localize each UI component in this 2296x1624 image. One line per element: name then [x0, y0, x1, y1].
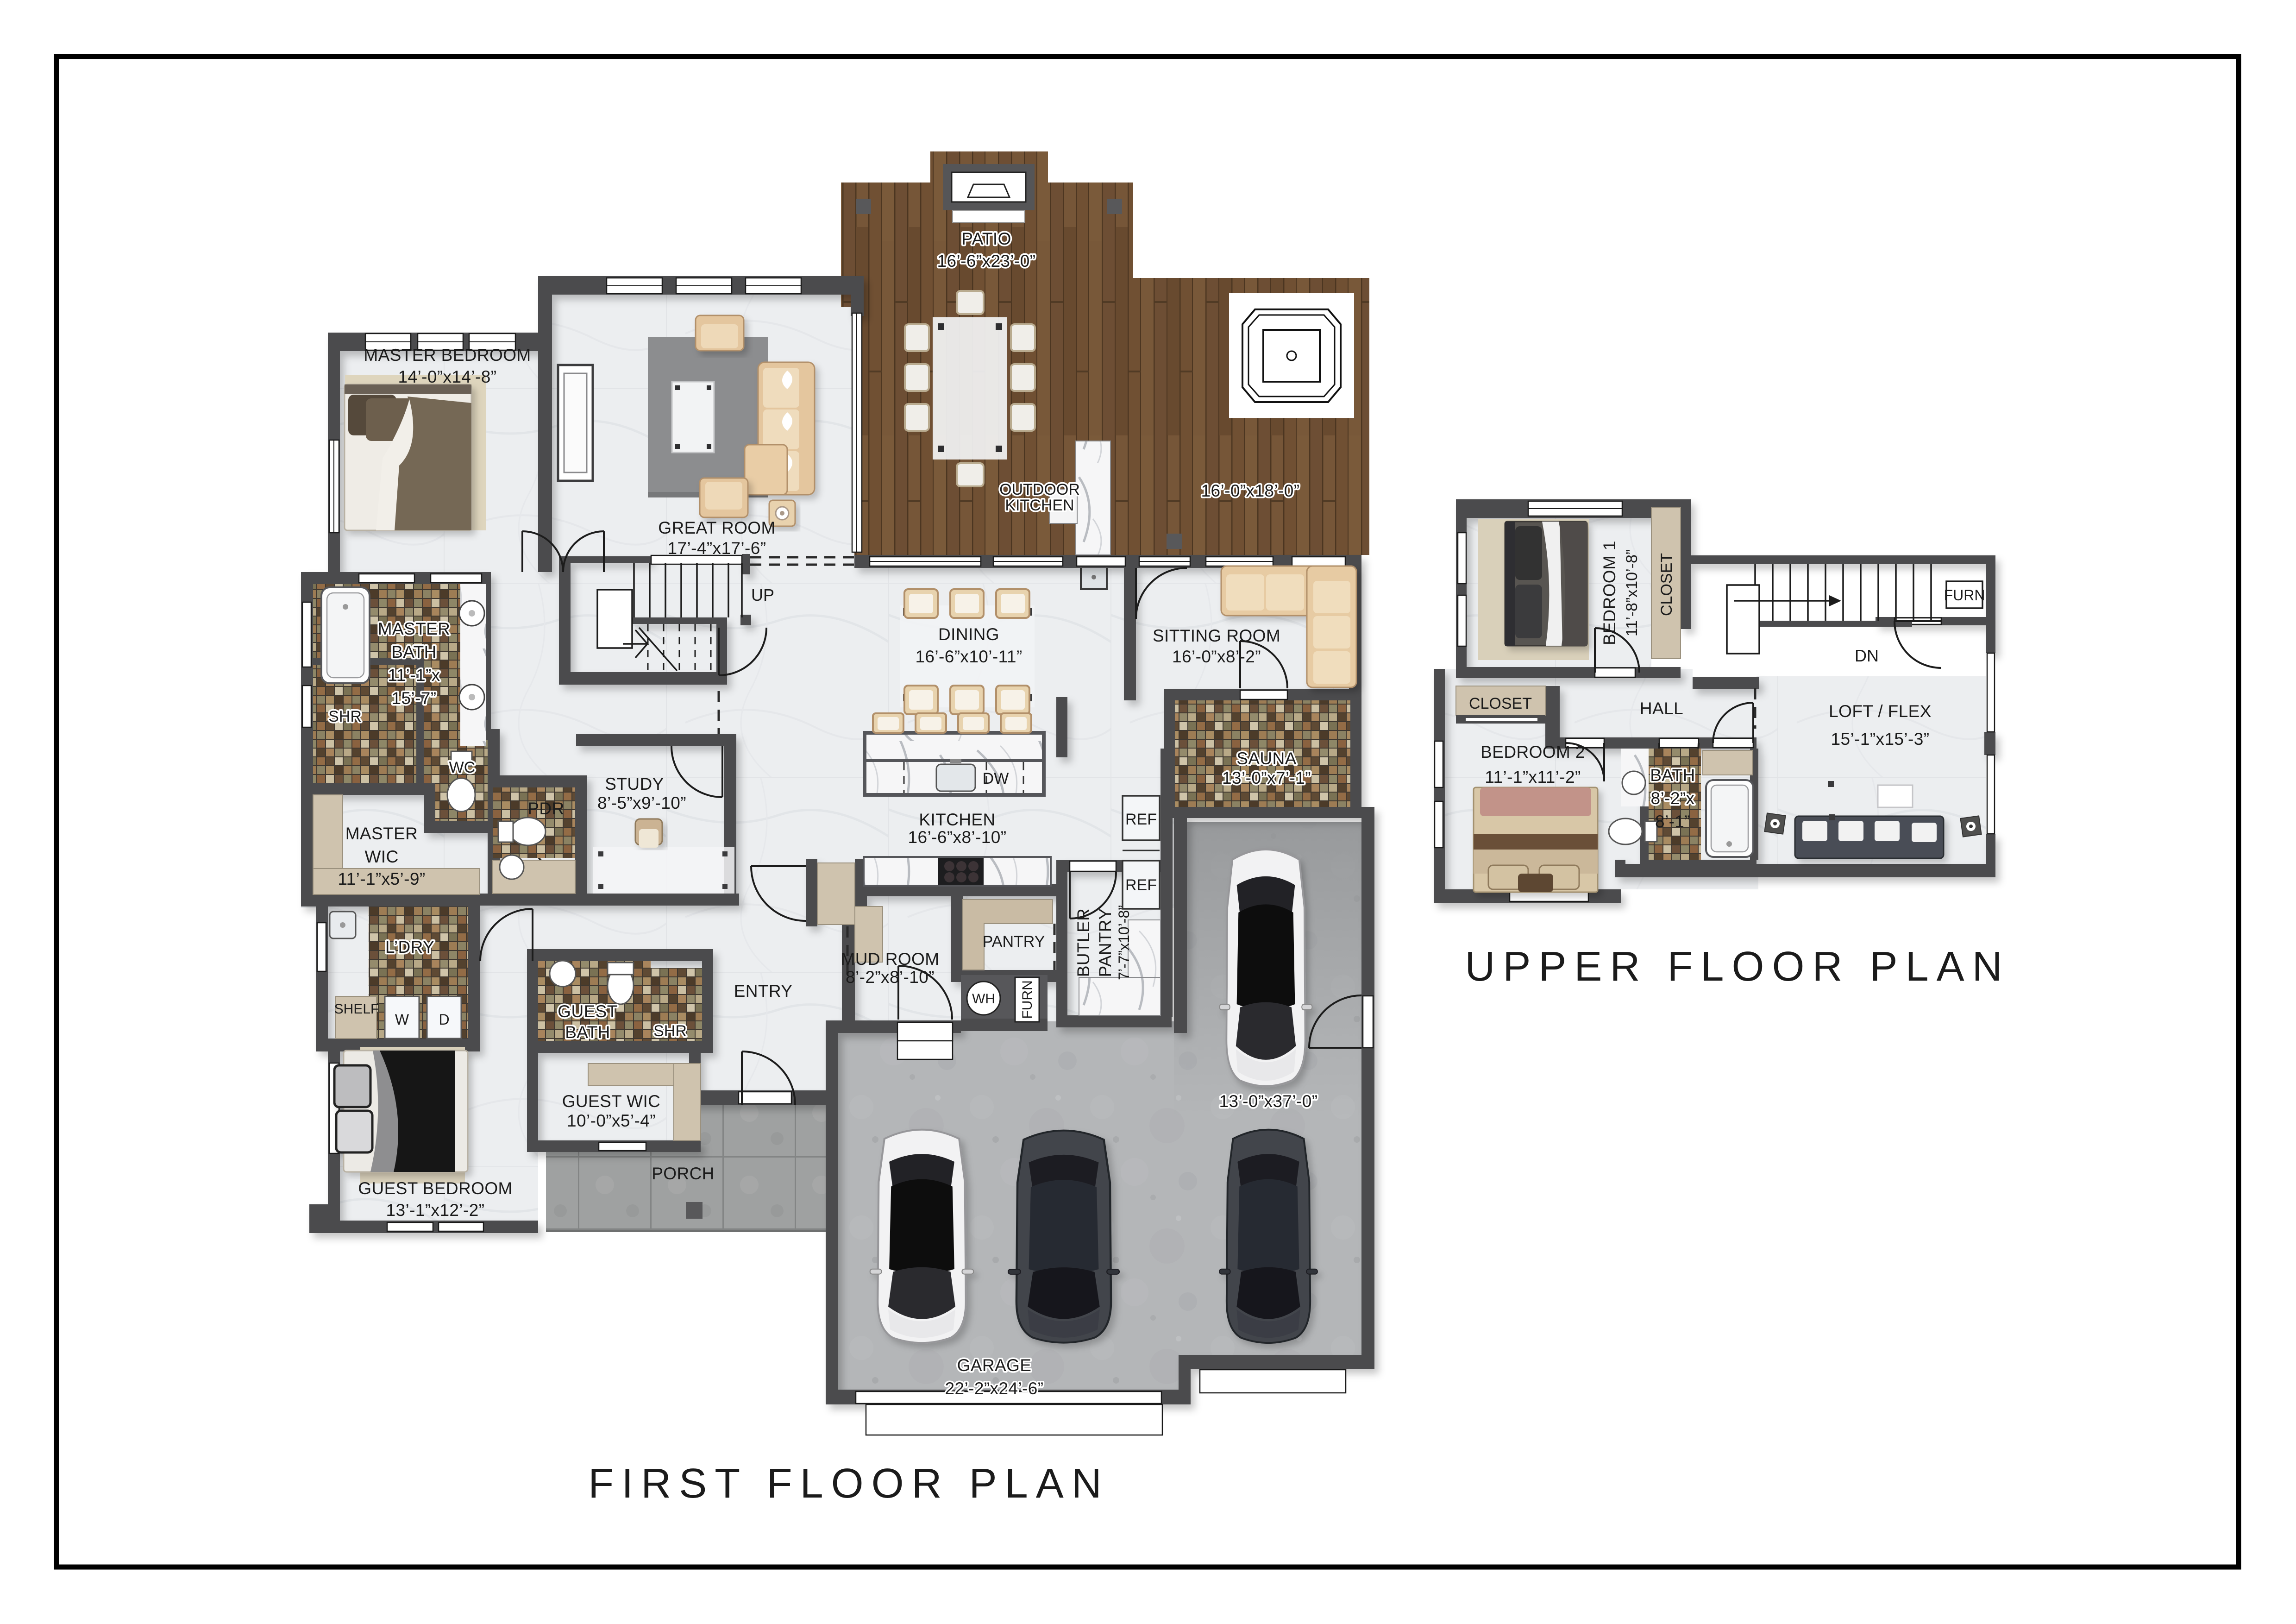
svg-text:11’-8”x10’-8”: 11’-8”x10’-8” [1623, 549, 1641, 636]
svg-text:13’-1”x12’-2”: 13’-1”x12’-2” [386, 1201, 485, 1220]
svg-text:11’-1”x5’-9”: 11’-1”x5’-9” [338, 869, 425, 888]
svg-text:REF: REF [1125, 811, 1157, 828]
svg-text:REF: REF [1125, 876, 1157, 894]
svg-text:PANTRY: PANTRY [983, 933, 1045, 950]
svg-text:16’-6”x8’-10”: 16’-6”x8’-10” [908, 828, 1007, 847]
svg-text:16’-0”x18’-0”: 16’-0”x18’-0” [1201, 481, 1300, 500]
svg-text:SHELF: SHELF [334, 1001, 379, 1017]
svg-text:D: D [439, 1011, 449, 1028]
svg-text:MASTER BEDROOM: MASTER BEDROOM [364, 346, 531, 365]
svg-text:SHR: SHR [653, 1022, 687, 1040]
svg-text:7’-7”x10’-8”: 7’-7”x10’-8” [1116, 905, 1132, 980]
svg-text:KITCHEN: KITCHEN [1005, 497, 1074, 514]
svg-text:LOFT / FLEX: LOFT / FLEX [1829, 702, 1932, 721]
svg-text:BUTLER: BUTLER [1074, 908, 1093, 977]
svg-text:HALL: HALL [1640, 699, 1683, 718]
svg-text:16’-6”x10’-11”: 16’-6”x10’-11” [915, 647, 1022, 666]
svg-text:SHR: SHR [328, 708, 362, 725]
svg-text:FURN: FURN [1944, 587, 1985, 604]
svg-text:GREAT ROOM: GREAT ROOM [658, 518, 775, 537]
svg-text:DW: DW [983, 770, 1009, 787]
svg-text:8’-1”: 8’-1” [1655, 812, 1690, 831]
svg-text:CLOSET: CLOSET [1658, 553, 1675, 616]
svg-text:GUEST: GUEST [558, 1002, 617, 1021]
svg-text:OUTDOOR: OUTDOOR [999, 481, 1080, 498]
svg-text:11’-1”x11’-2”: 11’-1”x11’-2” [1485, 768, 1581, 787]
svg-text:STUDY: STUDY [605, 774, 664, 793]
svg-text:BEDROOM 1: BEDROOM 1 [1600, 541, 1619, 645]
svg-text:17’-4”x17’-6”: 17’-4”x17’-6” [668, 539, 766, 558]
svg-text:GUEST WIC: GUEST WIC [562, 1092, 661, 1111]
svg-text:MUD ROOM: MUD ROOM [841, 950, 940, 969]
svg-text:CLOSET: CLOSET [1469, 695, 1532, 712]
svg-text:15’-7”: 15’-7” [392, 689, 437, 708]
svg-text:WIC: WIC [364, 847, 398, 866]
svg-text:DN: DN [1855, 646, 1879, 665]
svg-text:13’-0”x37’-0”: 13’-0”x37’-0” [1219, 1092, 1318, 1111]
svg-text:BATH: BATH [391, 642, 437, 661]
svg-text:PATIO: PATIO [961, 229, 1011, 248]
svg-text:UP: UP [751, 585, 774, 604]
svg-text:BATH: BATH [1650, 766, 1695, 785]
svg-text:WC: WC [449, 759, 476, 776]
svg-text:DINING: DINING [938, 625, 999, 644]
svg-text:KITCHEN: KITCHEN [919, 810, 995, 829]
svg-text:UPPER FLOOR PLAN: UPPER FLOOR PLAN [1465, 944, 2010, 990]
svg-text:PDR: PDR [527, 799, 564, 818]
svg-text:BATH: BATH [565, 1023, 610, 1042]
svg-text:13’-0”x7’-1”: 13’-0”x7’-1” [1222, 768, 1311, 787]
svg-text:22’-2”x24’-6”: 22’-2”x24’-6” [945, 1379, 1044, 1398]
svg-text:FURN: FURN [1020, 980, 1035, 1019]
svg-text:GUEST BEDROOM: GUEST BEDROOM [358, 1179, 512, 1198]
svg-text:PANTRY: PANTRY [1096, 908, 1115, 977]
svg-text:MASTER: MASTER [378, 619, 451, 638]
svg-text:BEDROOM 2: BEDROOM 2 [1480, 743, 1585, 762]
svg-text:W: W [395, 1011, 409, 1028]
svg-text:8’-2”x: 8’-2”x [1651, 789, 1695, 808]
svg-text:11’-1”x: 11’-1”x [388, 666, 440, 685]
svg-text:8’-2”x8’-10”: 8’-2”x8’-10” [846, 968, 935, 987]
svg-text:SITTING ROOM: SITTING ROOM [1153, 626, 1280, 645]
svg-text:10’-0”x5’-4”: 10’-0”x5’-4” [567, 1111, 656, 1130]
svg-text:WH: WH [972, 991, 995, 1007]
svg-text:MASTER: MASTER [345, 824, 418, 843]
svg-text:L’DRY: L’DRY [385, 938, 434, 957]
svg-text:14’-0”x14’-8”: 14’-0”x14’-8” [398, 367, 497, 386]
svg-text:SAUNA: SAUNA [1236, 749, 1296, 768]
svg-text:8’-5”x9’-10”: 8’-5”x9’-10” [597, 793, 686, 812]
svg-text:16’-0”x8’-2”: 16’-0”x8’-2” [1172, 647, 1261, 666]
svg-text:16’-6”x23’-0”: 16’-6”x23’-0” [937, 252, 1036, 271]
svg-text:PORCH: PORCH [652, 1164, 715, 1183]
svg-text:ENTRY: ENTRY [734, 982, 793, 1001]
svg-text:GARAGE: GARAGE [957, 1356, 1032, 1375]
svg-text:FIRST FLOOR PLAN: FIRST FLOOR PLAN [588, 1460, 1110, 1507]
svg-text:15’-1”x15’-3”: 15’-1”x15’-3” [1831, 730, 1930, 749]
